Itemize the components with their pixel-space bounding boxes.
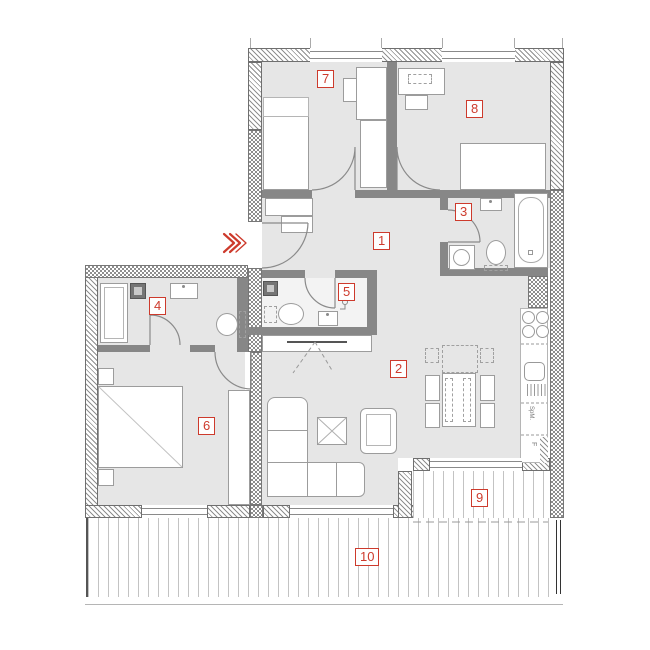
entrance-arrow-icon xyxy=(224,234,246,252)
door-arc-bath4 xyxy=(150,315,180,345)
room-label-10: 10 xyxy=(355,548,379,566)
room-label-1: 1 xyxy=(373,232,390,250)
door-arc-entrance xyxy=(262,223,308,268)
room-label-9: 9 xyxy=(471,489,488,507)
room-label-7: 7 xyxy=(317,70,334,88)
door-arc-room6 xyxy=(215,352,251,389)
room-label-2: 2 xyxy=(390,360,407,378)
kitchen-dividers-dashed xyxy=(521,344,547,435)
room-label-6: 6 xyxy=(198,417,215,435)
room-label-4: 4 xyxy=(149,297,166,315)
floor-plan: SpM. F xyxy=(0,0,650,650)
bed-fold-line xyxy=(99,387,182,467)
room-label-5: 5 xyxy=(338,283,355,301)
coffee-table-cross xyxy=(318,418,346,444)
overlay-svg xyxy=(0,0,650,650)
closet-swing-dashed xyxy=(293,342,333,373)
room-label-3: 3 xyxy=(455,203,472,221)
door-arc-wc5 xyxy=(305,278,335,308)
wc5-shower-hose xyxy=(340,305,345,309)
door-arc-room7 xyxy=(312,147,355,190)
room-label-8: 8 xyxy=(466,100,483,118)
door-arc-room8 xyxy=(397,147,440,190)
